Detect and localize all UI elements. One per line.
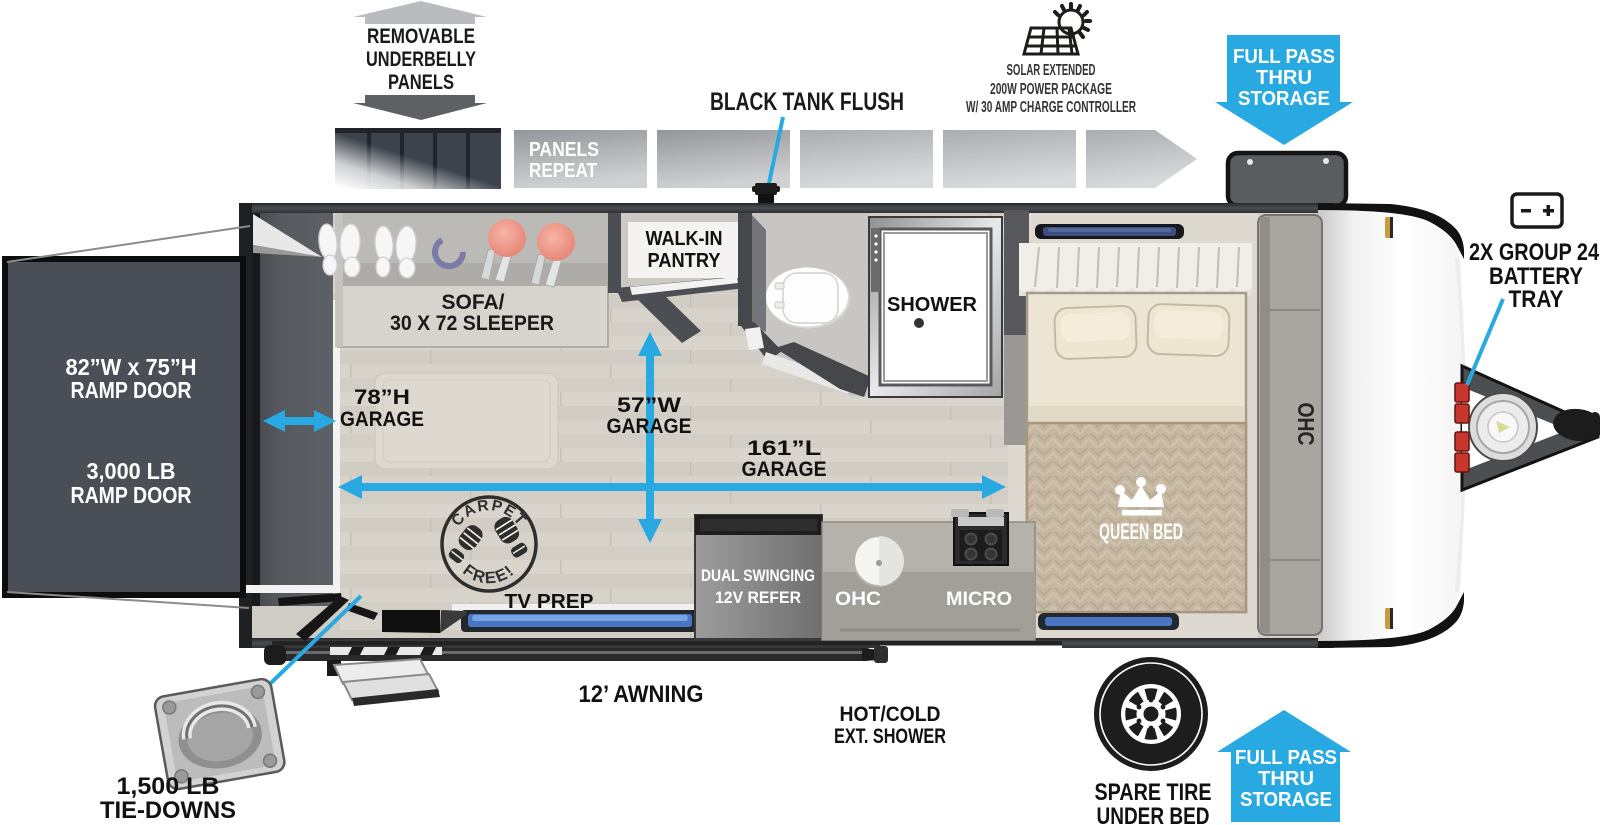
svg-text:GARAGE: GARAGE [340,408,424,431]
svg-text:12’ AWNING: 12’ AWNING [579,681,704,708]
svg-text:78”H: 78”H [354,386,410,409]
svg-text:RAMP DOOR: RAMP DOOR [71,377,192,403]
svg-text:161”L: 161”L [747,437,821,460]
svg-text:STORAGE: STORAGE [1240,789,1332,811]
svg-text:HOT/COLD: HOT/COLD [840,703,941,726]
svg-text:SPARE TIRE: SPARE TIRE [1095,779,1212,806]
svg-text:QUEEN BED: QUEEN BED [1099,519,1183,544]
svg-text:12V REFER: 12V REFER [715,588,801,607]
svg-text:MICRO: MICRO [946,589,1012,610]
svg-text:PANELS: PANELS [529,139,599,161]
svg-text:REPEAT: REPEAT [529,160,597,182]
svg-text:W/ 30 AMP CHARGE CONTROLLER: W/ 30 AMP CHARGE CONTROLLER [966,99,1136,116]
svg-text:EXT. SHOWER: EXT. SHOWER [834,725,946,748]
svg-text:BLACK TANK FLUSH: BLACK TANK FLUSH [710,88,904,116]
svg-text:UNDER BED: UNDER BED [1097,803,1210,825]
svg-text:1,500 LB: 1,500 LB [117,773,220,800]
svg-text:STORAGE: STORAGE [1238,88,1330,110]
svg-text:UNDERBELLY: UNDERBELLY [366,48,476,71]
svg-text:TRAY: TRAY [1509,286,1564,313]
svg-text:SOFA/: SOFA/ [442,291,505,314]
svg-text:WALK-IN: WALK-IN [646,228,723,250]
svg-text:REMOVABLE: REMOVABLE [367,25,475,48]
svg-text:RAMP DOOR: RAMP DOOR [71,482,192,508]
svg-text:GARAGE: GARAGE [742,458,827,481]
svg-text:THRU: THRU [1258,768,1314,790]
svg-text:SOLAR EXTENDED: SOLAR EXTENDED [1007,62,1096,79]
svg-text:SHOWER: SHOWER [887,294,978,316]
svg-text:PANELS: PANELS [388,71,454,94]
svg-text:FULL PASS: FULL PASS [1233,46,1335,68]
svg-text:DUAL SWINGING: DUAL SWINGING [701,566,815,585]
svg-text:OHC: OHC [1293,403,1319,446]
svg-text:OHC: OHC [835,589,881,610]
svg-text:THRU: THRU [1256,67,1312,89]
svg-text:3,000 LB: 3,000 LB [87,458,176,484]
svg-text:FULL PASS: FULL PASS [1235,747,1337,769]
svg-text:57”W: 57”W [617,394,681,417]
svg-text:200W POWER PACKAGE: 200W POWER PACKAGE [990,81,1112,98]
svg-text:30 X 72 SLEEPER: 30 X 72 SLEEPER [390,312,554,335]
svg-text:TV PREP: TV PREP [505,591,594,613]
svg-text:TIE-DOWNS: TIE-DOWNS [100,797,236,824]
svg-text:GARAGE: GARAGE [607,415,692,438]
svg-text:PANTRY: PANTRY [648,250,722,272]
svg-text:2X GROUP 24: 2X GROUP 24 [1469,239,1600,266]
